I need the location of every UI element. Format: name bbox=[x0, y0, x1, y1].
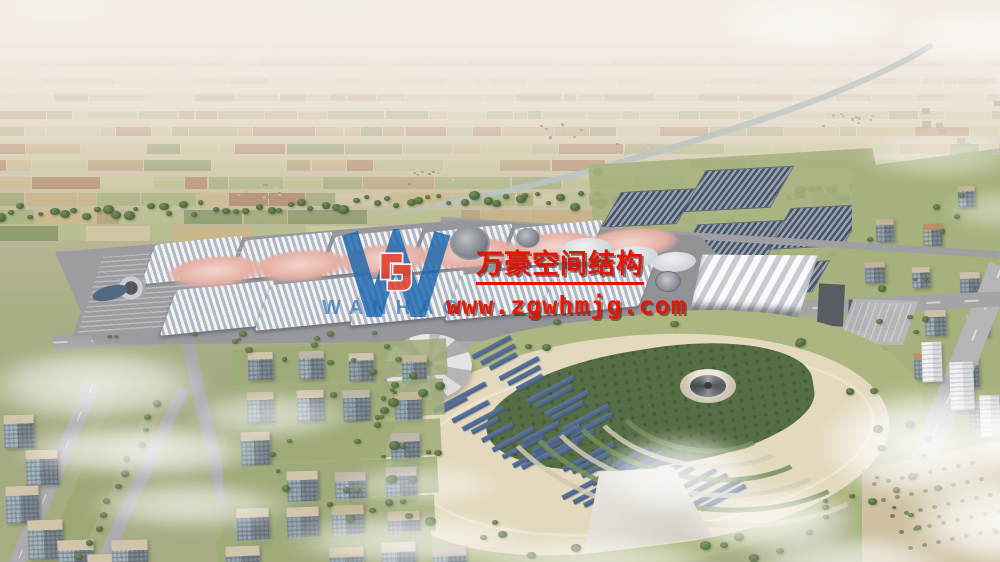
aerial-rendering: WANHAO 万豪空间结构 www.zgwhmjg.com bbox=[0, 0, 1000, 562]
cloud bbox=[0, 0, 160, 40]
cloud bbox=[700, 520, 1000, 562]
cloud bbox=[960, 40, 1000, 120]
cloud bbox=[300, 455, 540, 515]
cloud bbox=[150, 380, 390, 450]
cloud bbox=[240, 0, 420, 30]
cloud bbox=[920, 180, 1000, 240]
cloud bbox=[930, 380, 1000, 500]
clouds bbox=[0, 0, 1000, 562]
